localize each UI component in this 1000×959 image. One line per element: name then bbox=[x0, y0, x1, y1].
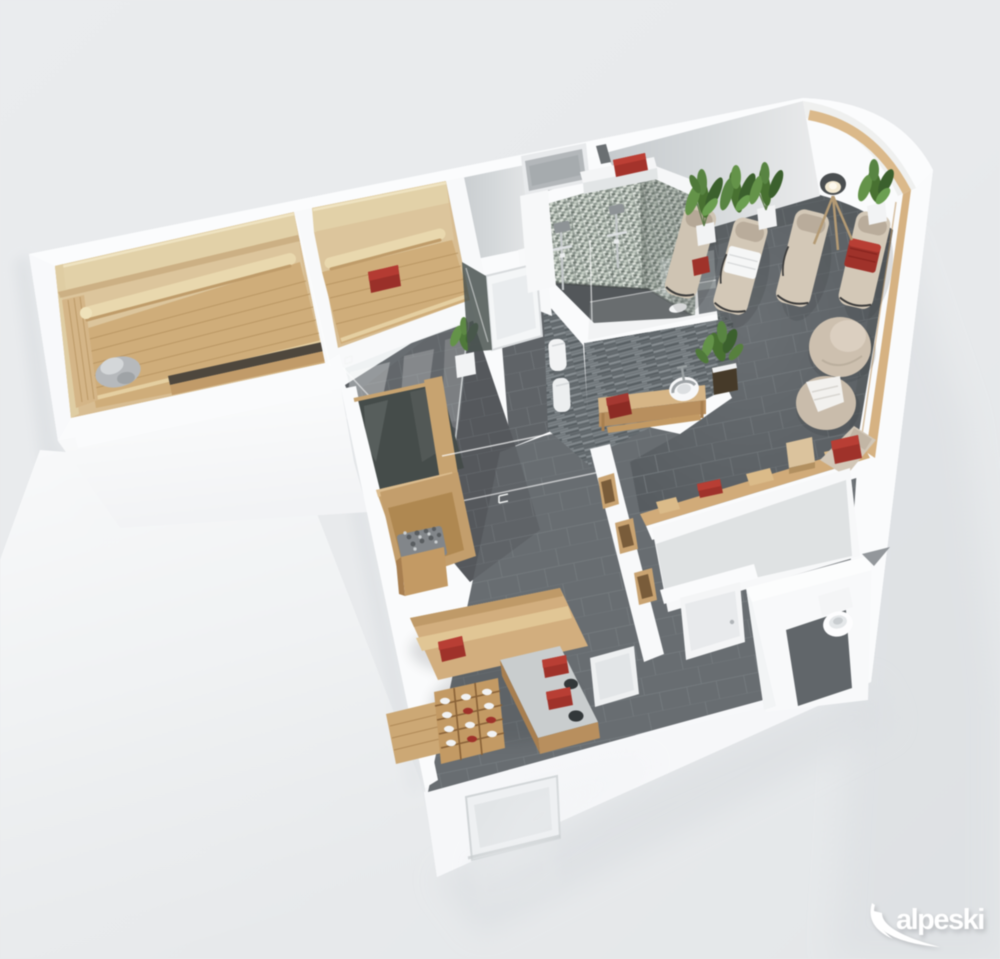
svg-text:alpeski: alpeski bbox=[896, 904, 984, 936]
